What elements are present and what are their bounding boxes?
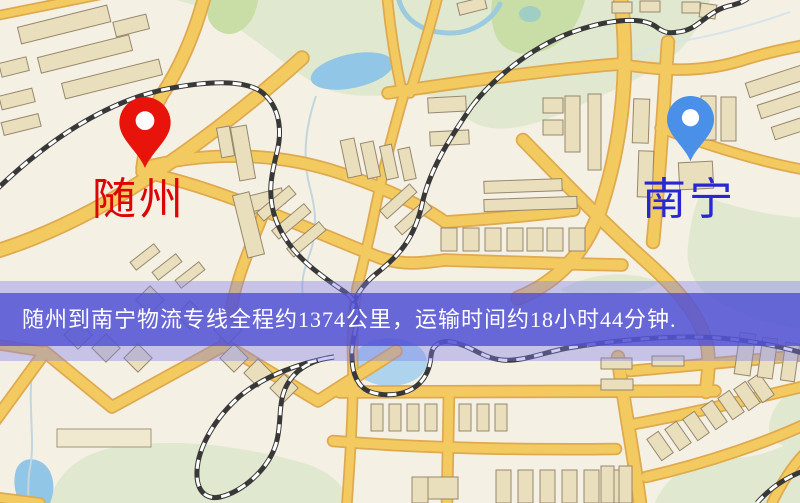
map-background [0,0,800,503]
logistics-route-map-image: 随州 南宁 随州到南宁物流专线全程约1374公里，运输时间约18小时44分钟. [0,0,800,503]
destination-pin-icon [663,96,718,163]
destination-city-label: 南宁 [642,178,736,222]
origin-pin-icon [115,97,175,170]
route-info-banner-band: 随州到南宁物流专线全程约1374公里，运输时间约18小时44分钟. [0,293,800,346]
origin-city-label: 随州 [92,178,186,222]
route-info-banner: 随州到南宁物流专线全程约1374公里，运输时间约18小时44分钟. [0,281,800,361]
route-info-text: 随州到南宁物流专线全程约1374公里，运输时间约18小时44分钟. [22,293,792,346]
